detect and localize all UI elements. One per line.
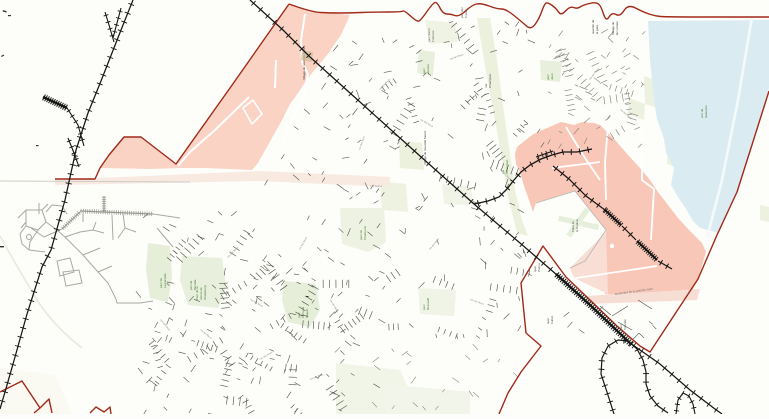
svg-text:Poitou: Poitou bbox=[537, 263, 541, 272]
svg-text:la fonderie: la fonderie bbox=[575, 218, 579, 232]
svg-text:Bienville: Bienville bbox=[193, 279, 197, 290]
svg-text:la gare: la gare bbox=[595, 24, 599, 34]
svg-text:Jean: Jean bbox=[550, 73, 554, 80]
svg-text:Recreatif: Recreatif bbox=[426, 298, 430, 310]
svg-text:Seguin: Seguin bbox=[305, 308, 309, 318]
svg-text:plaisance: plaisance bbox=[704, 105, 708, 118]
svg-text:Charlevoix: Charlevoix bbox=[363, 225, 367, 240]
svg-text:rue basse: rue basse bbox=[370, 184, 383, 188]
svg-text:Lamarzelle: Lamarzelle bbox=[163, 273, 167, 288]
svg-text:Champlain: Champlain bbox=[488, 73, 492, 88]
svg-text:Strasbourg: Strasbourg bbox=[203, 285, 207, 300]
svg-text:Fulton: Fulton bbox=[550, 315, 554, 324]
svg-text:Francois: Francois bbox=[431, 30, 435, 42]
svg-text:Jeanne: Jeanne bbox=[426, 64, 430, 74]
svg-text:Yolande: Yolande bbox=[623, 319, 627, 330]
svg-text:lac Leman: lac Leman bbox=[615, 21, 619, 35]
